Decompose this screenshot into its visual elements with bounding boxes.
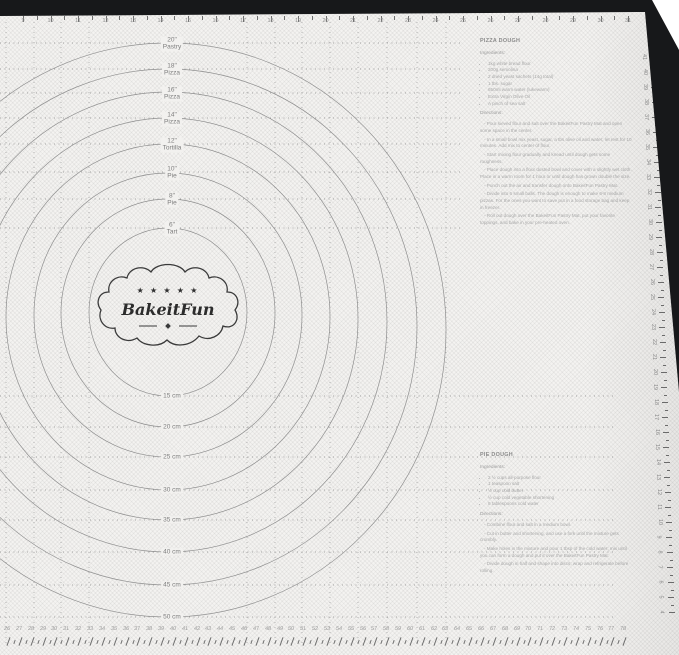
right-ruler-tick-12: [665, 492, 671, 493]
top-ruler-number-22: 22: [377, 18, 383, 24]
bottom-ruler-number-46: 46: [241, 626, 248, 632]
bottom-ruler-number-32: 32: [75, 626, 82, 632]
bottom-ruler-number-38: 38: [146, 626, 153, 632]
pie-direction-1: - Cut in butter and shortening, and use …: [480, 531, 632, 544]
circle-label-cm-4: 35 cm: [161, 516, 183, 523]
bottom-ruler-number-47: 47: [252, 626, 259, 632]
pizza-ingredients-heading: Ingredients:: [480, 51, 632, 58]
right-ruler-tick-17: [662, 417, 668, 418]
bottom-ruler-number-30: 30: [51, 626, 58, 632]
top-ruler-number-14: 14: [157, 18, 163, 24]
logo-stars: ★ ★ ★ ★ ★: [137, 286, 200, 295]
circle-name: Tart: [167, 229, 178, 236]
right-ruler-halftick-21: [663, 365, 666, 366]
top-ruler-number-31: 31: [625, 18, 631, 24]
bottom-ruler-number-48: 48: [264, 626, 271, 632]
right-ruler-number-14: 14: [655, 459, 661, 465]
top-ruler-number-24: 24: [432, 18, 438, 24]
right-ruler-halftick-16: [666, 440, 669, 441]
top-ruler-number-12: 12: [102, 18, 108, 24]
right-ruler-number-33: 33: [645, 174, 651, 180]
bottom-ruler-number-61: 61: [418, 626, 425, 632]
circle-name: Pie: [167, 173, 177, 180]
right-ruler-tick-16: [663, 432, 669, 433]
bottom-ruler-number-62: 62: [430, 626, 437, 632]
right-ruler-halftick-13: [667, 485, 670, 486]
bottom-ruler-number-40: 40: [170, 626, 177, 632]
pizza-dough-recipe: PIZZA DOUGH Ingredients: 1kg white bread…: [480, 38, 632, 229]
circle-label-inch-3: 12"Tortilla: [161, 138, 184, 153]
right-ruler-halftick-5: [671, 605, 674, 606]
circle-name: Pastry: [163, 44, 181, 51]
bottom-ruler-number-50: 50: [288, 626, 295, 632]
right-ruler-halftick-19: [664, 395, 667, 396]
circle-name: Tortilla: [163, 145, 182, 152]
right-ruler-halftick-31: [658, 215, 661, 216]
right-ruler-tick-38: [652, 102, 658, 103]
pie-direction-3: - Divide dough in half and shape into di…: [480, 561, 632, 574]
inch-value: 12": [167, 138, 177, 145]
inch-value: 20": [167, 37, 177, 44]
pie-ingredients-list: 2 ½ cups all-purpose flour1 teaspoon sal…: [480, 475, 632, 508]
bottom-ruler-number-39: 39: [158, 626, 165, 632]
right-ruler-number-29: 29: [647, 234, 653, 240]
right-ruler-number-24: 24: [650, 309, 656, 315]
right-ruler-number-36: 36: [644, 129, 650, 135]
right-ruler-halftick-17: [665, 425, 668, 426]
bottom-ruler-number-73: 73: [561, 626, 568, 632]
bottom-ruler-number-45: 45: [229, 626, 236, 632]
circle-label-inch-5: 16"Pizza: [162, 87, 182, 102]
bottom-ruler-number-57: 57: [371, 626, 378, 632]
right-ruler-halftick-39: [654, 95, 657, 96]
inch-value: 14": [167, 112, 177, 119]
circle-name: Pizza: [164, 94, 180, 101]
right-ruler-number-11: 11: [656, 504, 662, 510]
top-ruler-number-13: 13: [130, 18, 136, 24]
right-ruler-number-9: 9: [656, 535, 662, 538]
bottom-ruler-number-72: 72: [549, 626, 556, 632]
top-ruler-halftick-24: [449, 16, 450, 20]
right-ruler-tick-25: [658, 297, 664, 298]
right-ruler-halftick-9: [669, 545, 672, 546]
top-ruler-number-27: 27: [515, 18, 521, 24]
right-ruler-halftick-35: [656, 155, 659, 156]
bottom-ruler-number-54: 54: [335, 626, 342, 632]
circle-label-inch-0: 6"Tart: [165, 222, 180, 237]
bottom-ruler-number-65: 65: [466, 626, 473, 632]
right-ruler-halftick-28: [660, 260, 663, 261]
right-ruler-tick-5: [668, 597, 674, 598]
top-ruler-halftick-25: [477, 16, 478, 20]
bottom-ruler-number-77: 77: [608, 626, 615, 632]
right-ruler-tick-15: [663, 447, 669, 448]
bottom-ruler-number-74: 74: [572, 626, 579, 632]
right-ruler-number-32: 32: [646, 189, 652, 195]
bottom-ruler-number-44: 44: [217, 626, 224, 632]
right-ruler-tick-34: [654, 162, 660, 163]
circle-name: Pizza: [164, 119, 180, 126]
top-ruler-halftick-19: [312, 16, 313, 20]
right-ruler-tick-35: [653, 147, 659, 148]
pizza-dough-title: PIZZA DOUGH: [480, 38, 632, 46]
circle-label-cm-3: 30 cm: [161, 486, 183, 493]
right-ruler-halftick-8: [670, 560, 673, 561]
bottom-ruler-number-66: 66: [478, 626, 485, 632]
right-ruler-number-41: 41: [641, 54, 647, 60]
circle-label-inch-7: 20"Pastry: [161, 37, 183, 52]
right-ruler-halftick-27: [660, 275, 663, 276]
top-ruler-halftick-22: [394, 16, 395, 20]
right-ruler-number-38: 38: [643, 99, 649, 105]
top-ruler-number-10: 10: [47, 18, 53, 24]
right-ruler-halftick-33: [657, 185, 660, 186]
right-ruler-number-15: 15: [654, 444, 660, 450]
bottom-ruler-number-49: 49: [276, 626, 283, 632]
bottom-ruler-number-26: 26: [4, 626, 11, 632]
right-ruler-tick-24: [659, 312, 665, 313]
right-ruler-halftick-37: [655, 125, 658, 126]
right-ruler-number-16: 16: [654, 429, 660, 435]
bottom-ruler-number-36: 36: [122, 626, 129, 632]
top-ruler-number-26: 26: [487, 18, 493, 24]
top-ruler-halftick-30: [614, 16, 615, 20]
bottom-ruler-number-37: 37: [134, 626, 141, 632]
pizza-ingredient-1: 200g semolina: [488, 67, 632, 74]
bottom-ruler-number-28: 28: [27, 626, 34, 632]
top-ruler-halftick-26: [504, 16, 505, 20]
right-ruler-halftick-38: [655, 110, 658, 111]
top-ruler-halftick-16: [229, 16, 230, 20]
top-ruler-number-19: 19: [295, 18, 301, 24]
right-ruler-number-4: 4: [658, 610, 664, 613]
bottom-ruler-number-70: 70: [525, 626, 532, 632]
right-ruler-tick-9: [666, 537, 672, 538]
pizza-direction-1: - In a small bowl mix yeast, sugar, a tb…: [480, 137, 632, 150]
pie-ingredient-2: ½ cup cold butter: [488, 488, 632, 495]
top-ruler-number-28: 28: [542, 18, 548, 24]
top-ruler-halftick-17: [257, 16, 258, 20]
top-ruler-halftick-28: [559, 16, 560, 20]
bottom-ruler-number-63: 63: [442, 626, 449, 632]
top-ruler-halftick-14: [174, 16, 175, 20]
top-ruler-number-15: 15: [185, 18, 191, 24]
pie-direction-0: - Combine flour and salt in a medium bow…: [480, 522, 632, 529]
right-ruler-tick-19: [661, 387, 667, 388]
right-ruler-number-13: 13: [655, 474, 661, 480]
pizza-direction-6: - Roll out dough over the BakeitFun Past…: [480, 213, 632, 226]
right-ruler-number-22: 22: [651, 339, 657, 345]
pie-direction-2: - Make holes in the mixture and pour 1 t…: [480, 546, 632, 559]
right-ruler-number-17: 17: [653, 414, 659, 420]
pie-directions-heading: Directions:: [480, 512, 632, 519]
top-ruler-halftick-20: [339, 16, 340, 20]
circle-label-cm-1: 20 cm: [161, 423, 183, 430]
logo-ornament: [139, 323, 197, 329]
top-ruler-halftick-15: [202, 16, 203, 20]
right-ruler-number-34: 34: [645, 159, 651, 165]
top-ruler-halftick-23: [422, 16, 423, 20]
logo-text: BakeitFun: [121, 300, 215, 319]
circle-label-inch-1: 8"Pie: [165, 193, 178, 208]
right-ruler-number-21: 21: [651, 354, 657, 360]
top-ruler-halftick-29: [587, 16, 588, 20]
right-ruler-halftick-26: [661, 290, 664, 291]
right-ruler-number-6: 6: [657, 580, 663, 583]
bottom-ruler-number-71: 71: [537, 626, 544, 632]
bottom-ruler-number-51: 51: [300, 626, 307, 632]
bottom-ruler-number-56: 56: [359, 626, 366, 632]
right-ruler-tick-21: [660, 357, 666, 358]
top-ruler-number-30: 30: [597, 18, 603, 24]
right-ruler-number-40: 40: [642, 69, 648, 75]
pie-ingredient-3: ½ cup cold vegetable shortening: [488, 495, 632, 502]
bottom-ruler-number-31: 31: [63, 626, 70, 632]
right-ruler-halftick-24: [662, 320, 665, 321]
right-ruler-tick-20: [661, 372, 667, 373]
bottom-ruler-number-64: 64: [454, 626, 461, 632]
circle-name: Pizza: [164, 70, 180, 77]
pizza-ingredient-6: A pinch of sea salt: [488, 101, 632, 108]
pizza-direction-4: - Punch out the air and transfer dough o…: [480, 183, 632, 190]
pie-directions: - Combine flour and salt in a medium bow…: [480, 522, 632, 575]
right-ruler-tick-27: [657, 267, 663, 268]
right-ruler-tick-6: [668, 582, 674, 583]
bottom-ruler-number-27: 27: [15, 626, 22, 632]
right-ruler-halftick-41: [653, 65, 656, 66]
right-ruler-number-39: 39: [642, 84, 648, 90]
right-ruler-tick-13: [664, 477, 670, 478]
circle-label-inch-4: 14"Pizza: [162, 112, 182, 127]
bottom-ruler-number-69: 69: [513, 626, 520, 632]
circle-label-cm-0: 15 cm: [161, 392, 183, 399]
right-ruler-number-18: 18: [653, 399, 659, 405]
right-ruler-number-5: 5: [658, 595, 664, 598]
top-ruler-number-16: 16: [212, 18, 218, 24]
right-ruler-halftick-40: [654, 80, 657, 81]
circle-label-cm-5: 40 cm: [161, 548, 183, 555]
inch-value: 8": [169, 193, 175, 200]
top-ruler-halftick-9: [37, 16, 38, 20]
pie-dough-title: PIE DOUGH: [480, 452, 632, 460]
bottom-ruler-number-67: 67: [489, 626, 496, 632]
right-ruler-tick-29: [656, 237, 662, 238]
bottom-ruler-number-78: 78: [620, 626, 627, 632]
right-ruler-number-20: 20: [652, 369, 658, 375]
bottom-ruler-number-55: 55: [347, 626, 354, 632]
bottom-ruler-number-42: 42: [193, 626, 200, 632]
pizza-ingredient-3: 1 tbs. sugar: [488, 81, 632, 88]
inch-value: 16": [167, 87, 177, 94]
bottom-ruler-number-52: 52: [312, 626, 319, 632]
pizza-direction-0: - Pour sieved flour and salt over the Ba…: [480, 121, 632, 134]
pizza-ingredient-4: 650ml warm water (lukewarm): [488, 87, 632, 94]
right-ruler-tick-31: [655, 207, 661, 208]
circle-label-cm-7: 50 cm: [161, 613, 183, 620]
right-ruler-halftick-29: [659, 245, 662, 246]
bottom-ruler-number-75: 75: [584, 626, 591, 632]
right-ruler-number-23: 23: [650, 324, 656, 330]
right-ruler-halftick-18: [665, 410, 668, 411]
pizza-directions: - Pour sieved flour and salt over the Ba…: [480, 121, 632, 226]
bottom-ruler-number-35: 35: [110, 626, 117, 632]
inch-value: 6": [169, 222, 175, 229]
right-ruler-tick-22: [660, 342, 666, 343]
circle-label-cm-6: 45 cm: [161, 581, 183, 588]
right-ruler-halftick-6: [671, 590, 674, 591]
pizza-ingredients-list: 1kg white bread flour200g semolina2 drie…: [480, 61, 632, 108]
right-ruler-halftick-36: [656, 140, 659, 141]
right-ruler-halftick-11: [668, 515, 671, 516]
right-ruler-number-35: 35: [644, 144, 650, 150]
right-ruler-number-25: 25: [649, 294, 655, 300]
top-ruler-halftick-27: [532, 16, 533, 20]
top-ruler-halftick-13: [147, 16, 148, 20]
right-ruler-halftick-15: [666, 455, 669, 456]
circle-label-inch-2: 10"Pie: [165, 166, 179, 181]
right-ruler-tick-37: [652, 117, 658, 118]
top-ruler-number-25: 25: [460, 18, 466, 24]
bottom-ruler-number-41: 41: [181, 626, 188, 632]
right-ruler-tick-8: [667, 552, 673, 553]
right-ruler-halftick-32: [658, 200, 661, 201]
circle-label-inch-6: 18"Pizza: [162, 63, 182, 78]
pizza-ingredient-0: 1kg white bread flour: [488, 61, 632, 68]
pizza-directions-heading: Directions:: [480, 111, 632, 118]
right-ruler-tick-23: [659, 327, 665, 328]
bottom-ruler-number-76: 76: [596, 626, 603, 632]
right-ruler-tick-36: [653, 132, 659, 133]
top-ruler-halftick-11: [92, 16, 93, 20]
pie-ingredient-0: 2 ½ cups all-purpose flour: [488, 475, 632, 482]
right-ruler-number-31: 31: [646, 204, 652, 210]
top-ruler-halftick-21: [367, 16, 368, 20]
pie-dough-recipe: PIE DOUGH Ingredients: 2 ½ cups all-purp…: [480, 452, 632, 577]
right-ruler-tick-28: [657, 252, 663, 253]
inch-value: 10": [167, 166, 177, 173]
right-ruler-number-19: 19: [652, 384, 658, 390]
right-ruler-halftick-22: [663, 350, 666, 351]
right-ruler-number-8: 8: [656, 550, 662, 553]
right-ruler-tick-11: [665, 507, 671, 508]
right-ruler-number-7: 7: [657, 565, 663, 568]
top-ruler-number-11: 11: [75, 18, 81, 24]
right-ruler-number-27: 27: [648, 264, 654, 270]
right-ruler-halftick-25: [661, 305, 664, 306]
circle-label-cm-2: 25 cm: [161, 453, 183, 460]
right-ruler-number-37: 37: [643, 114, 649, 120]
right-ruler-tick-39: [651, 87, 657, 88]
right-ruler-tick-18: [662, 402, 668, 403]
top-ruler-number-18: 18: [267, 18, 273, 24]
top-ruler-number-29: 29: [570, 18, 576, 24]
top-ruler-number-17: 17: [240, 18, 246, 24]
right-ruler-halftick-12: [668, 500, 671, 501]
right-ruler-tick-4: [669, 612, 675, 613]
pizza-ingredient-5: Extra Virgin Olive Oil: [488, 94, 632, 101]
right-ruler-halftick-20: [664, 380, 667, 381]
right-ruler-number-26: 26: [649, 279, 655, 285]
circle-name: Pie: [167, 200, 176, 207]
bottom-ruler-number-53: 53: [324, 626, 331, 632]
right-ruler-halftick-7: [670, 575, 673, 576]
right-ruler-tick-14: [664, 462, 670, 463]
brand-logo: ★ ★ ★ ★ ★ BakeitFun: [93, 264, 243, 352]
pie-ingredients-heading: Ingredients:: [480, 465, 632, 472]
right-ruler-halftick-10: [669, 530, 672, 531]
top-ruler-number-21: 21: [350, 18, 356, 24]
product-photo: { "brand": { "stars": "★ ★ ★ ★ ★", "logo…: [0, 0, 679, 655]
top-ruler-number-23: 23: [405, 18, 411, 24]
right-ruler-tick-32: [655, 192, 661, 193]
top-ruler-halftick-12: [119, 16, 120, 20]
right-ruler-halftick-23: [662, 335, 665, 336]
right-ruler-number-30: 30: [647, 219, 653, 225]
bottom-ruler-number-29: 29: [39, 626, 46, 632]
top-ruler-number-20: 20: [322, 18, 328, 24]
pizza-ingredient-2: 2 dried yeast sachets (14g total): [488, 74, 632, 81]
bottom-ruler-number-33: 33: [87, 626, 94, 632]
pizza-direction-2: - Start mixing flour gradually and knead…: [480, 152, 632, 165]
right-ruler-tick-33: [654, 177, 660, 178]
right-ruler-halftick-30: [659, 230, 662, 231]
pizza-direction-3: - Place dough into a flour dusted bowl a…: [480, 167, 632, 180]
bottom-ruler-number-43: 43: [205, 626, 212, 632]
bottom-ruler-number-60: 60: [407, 626, 414, 632]
right-ruler-tick-30: [656, 222, 662, 223]
right-ruler-tick-41: [650, 57, 656, 58]
right-ruler-number-10: 10: [657, 519, 663, 525]
bottom-ruler-number-59: 59: [395, 626, 402, 632]
bottom-ruler-number-34: 34: [98, 626, 105, 632]
top-ruler-halftick-10: [64, 16, 65, 20]
bottom-ruler-number-58: 58: [383, 626, 390, 632]
right-ruler-number-28: 28: [648, 249, 654, 255]
right-ruler-tick-10: [666, 522, 672, 523]
inch-value: 18": [167, 63, 177, 70]
top-ruler-number-9: 9: [21, 18, 24, 24]
right-ruler-number-12: 12: [656, 489, 662, 495]
right-ruler-halftick-34: [657, 170, 660, 171]
top-ruler-halftick-18: [284, 16, 285, 20]
right-ruler-tick-26: [658, 282, 664, 283]
bottom-ruler-number-68: 68: [501, 626, 508, 632]
right-ruler-tick-7: [667, 567, 673, 568]
right-ruler-tick-40: [651, 72, 657, 73]
right-ruler-halftick-14: [667, 470, 670, 471]
pizza-direction-5: - Divide into 6 small balls. The dough i…: [480, 191, 632, 211]
logo-badge: ★ ★ ★ ★ ★ BakeitFun: [93, 264, 243, 352]
pie-ingredient-4: 8 tablespoons cold water: [488, 501, 632, 508]
